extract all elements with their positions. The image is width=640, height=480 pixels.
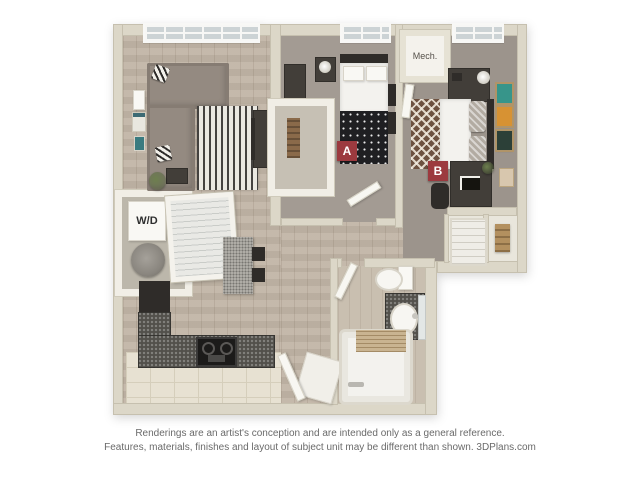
living-room-window [143,23,260,43]
mechanical-label: Mech. [406,36,444,76]
wall-art-teal [497,84,512,103]
wall-art-orange [497,107,512,126]
side-table [166,168,188,184]
wall-art-a [388,112,396,134]
bed-b-headboard [487,99,494,169]
wall-art [134,136,145,151]
lamp-a [319,61,331,73]
bed-a-pillow [366,66,387,81]
tub-wood-mat [356,330,406,352]
dining-chair [252,247,265,261]
stove-panel [208,355,225,362]
disclaimer-line-2: Features, materials, finishes and layout… [0,441,640,455]
wall-bedroom-b-bottom [447,207,517,216]
wall-closet-left [444,214,449,263]
bedroom-b-hall-floor [403,207,447,265]
hanging-clothes [287,118,300,158]
bed-a-headboard [340,54,388,63]
bedroom-b-window [452,23,504,43]
wall-bedroom-a-bottom-left [281,218,343,226]
bedroom-a-badge: A [337,141,357,161]
wall-art-tan [499,168,514,187]
desk-chair-b [431,183,449,209]
desk-plant [482,162,494,174]
dresser-decor [452,73,462,81]
wall-bath-right [425,261,437,415]
linen-closet-towels [495,224,510,252]
bed-b-pillow [469,101,486,132]
stove-burner [220,342,233,355]
bedroom-b-badge: B [428,161,448,181]
stove [196,337,237,367]
lamp-b [477,71,490,84]
wall-right [517,24,527,273]
toilet-bowl [375,268,403,291]
wall-art-a [388,84,396,106]
bed-b-blanket [411,99,442,169]
floor-plan-rendering: W/D [0,0,640,480]
living-plant [149,172,166,190]
wall-art [133,90,145,110]
wall-art [132,112,146,132]
area-rug [197,106,258,190]
refrigerator [139,281,170,314]
sliding-closet-doors [450,218,487,266]
washer-dryer-unit: W/D [128,201,166,241]
tub-faucet [348,382,364,387]
bed-b-duvet [440,99,471,169]
bedroom-a-closet [268,99,334,196]
desk-monitor [460,176,480,190]
wall-art-green [497,131,512,150]
mechanical-closet: Mech. [400,30,450,82]
disclaimer: Renderings are an artist's conception an… [0,427,640,455]
throw-pillow [155,145,173,163]
dining-table [223,237,253,294]
washer-dryer-label: W/D [129,202,165,240]
dining-chair [252,268,265,282]
tv-screen [251,118,255,160]
disclaimer-line-1: Renderings are an artist's conception an… [0,427,640,441]
bedroom-a-window [340,23,391,43]
stove-burner [202,342,215,355]
vanity-mirror [418,295,426,340]
page: W/D [0,0,640,480]
bed-a-pillow [343,66,364,81]
water-heater [131,243,165,277]
